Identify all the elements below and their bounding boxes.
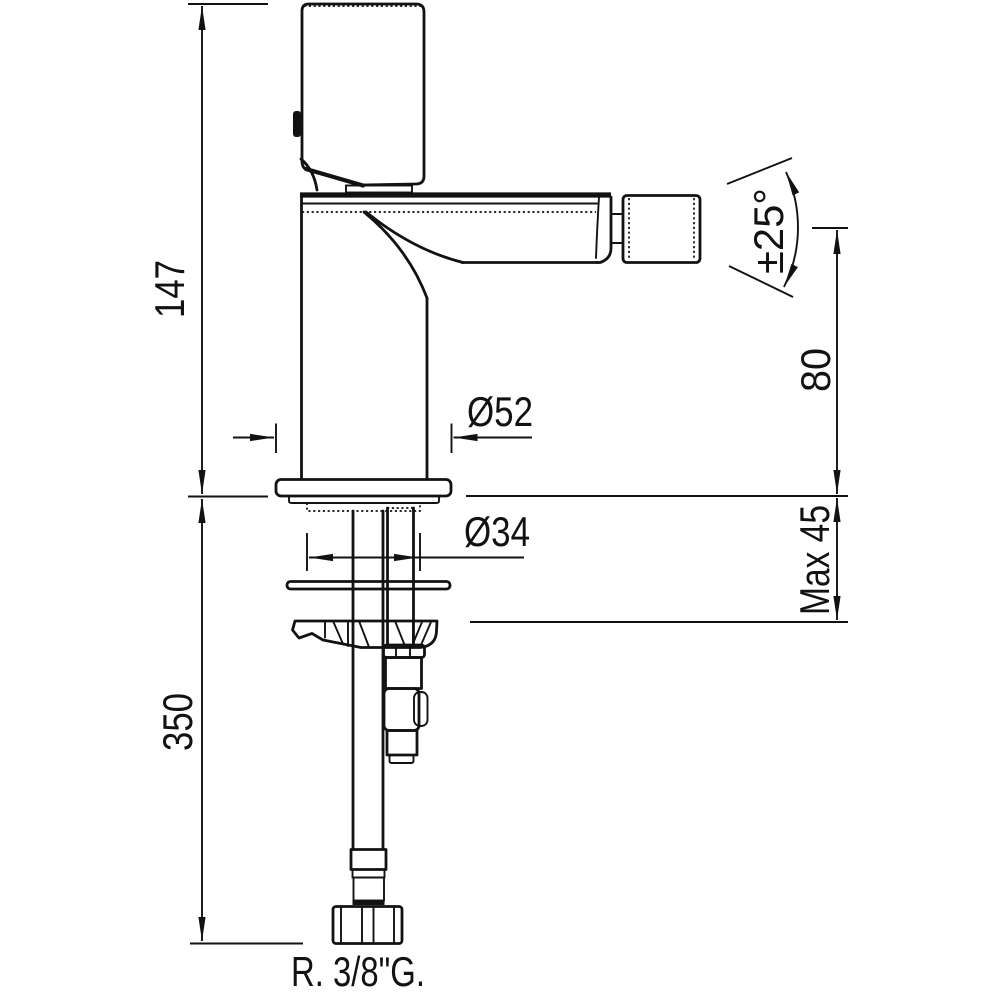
faucet-technical-drawing: 147 350 Ø52 Ø34 (0, 0, 1000, 1000)
angle-leg-top (727, 158, 792, 184)
nozzle-body (623, 196, 700, 263)
clamp-rib (359, 621, 369, 647)
faucet-body-group (276, 4, 700, 944)
clamp-rib (333, 621, 343, 644)
mounting-nut-lobe (414, 692, 428, 726)
dim-label-max45: Max 45 (791, 505, 838, 615)
spout-endcap-inner (596, 197, 599, 258)
stud-lower-block (387, 731, 417, 756)
dimension-147-group: 147 (146, 4, 268, 497)
body-blend-curve-right (366, 212, 463, 263)
dim-label-147: 147 (146, 260, 193, 318)
dimension-dia34-group: Ø34 (307, 508, 530, 571)
dimension-swivel-angle-group: ±25° (727, 158, 798, 297)
dim-label-dia34: Ø34 (464, 508, 530, 555)
base-flange (276, 480, 451, 497)
thread-size-label: R. 3/8"G. (291, 948, 425, 995)
stud-spacer-block (386, 658, 422, 689)
hose-seal-band (353, 901, 385, 906)
dimension-dia52-group: Ø52 (233, 388, 533, 453)
body-blend-curve-left (364, 212, 427, 298)
technical-drawing-page: 147 350 Ø52 Ø34 (0, 0, 1000, 1000)
hose-connection-nut (333, 907, 402, 944)
hose-collar (351, 850, 386, 870)
dim-label-swivel: ±25° (745, 188, 792, 274)
washer-plate (287, 582, 450, 590)
hose-block (354, 878, 385, 901)
dimension-350-group: 350 (154, 499, 303, 944)
handle-outline (302, 4, 424, 185)
dim-label-350: 350 (154, 693, 201, 751)
dim-label-80: 80 (792, 348, 839, 392)
dim-label-dia52: Ø52 (467, 388, 533, 435)
base-shank-hidden (307, 503, 420, 511)
clamp-rib (421, 622, 431, 645)
clamp-rib (395, 621, 405, 646)
cartridge-collar (346, 186, 412, 193)
handle-lever-clip (293, 111, 301, 137)
